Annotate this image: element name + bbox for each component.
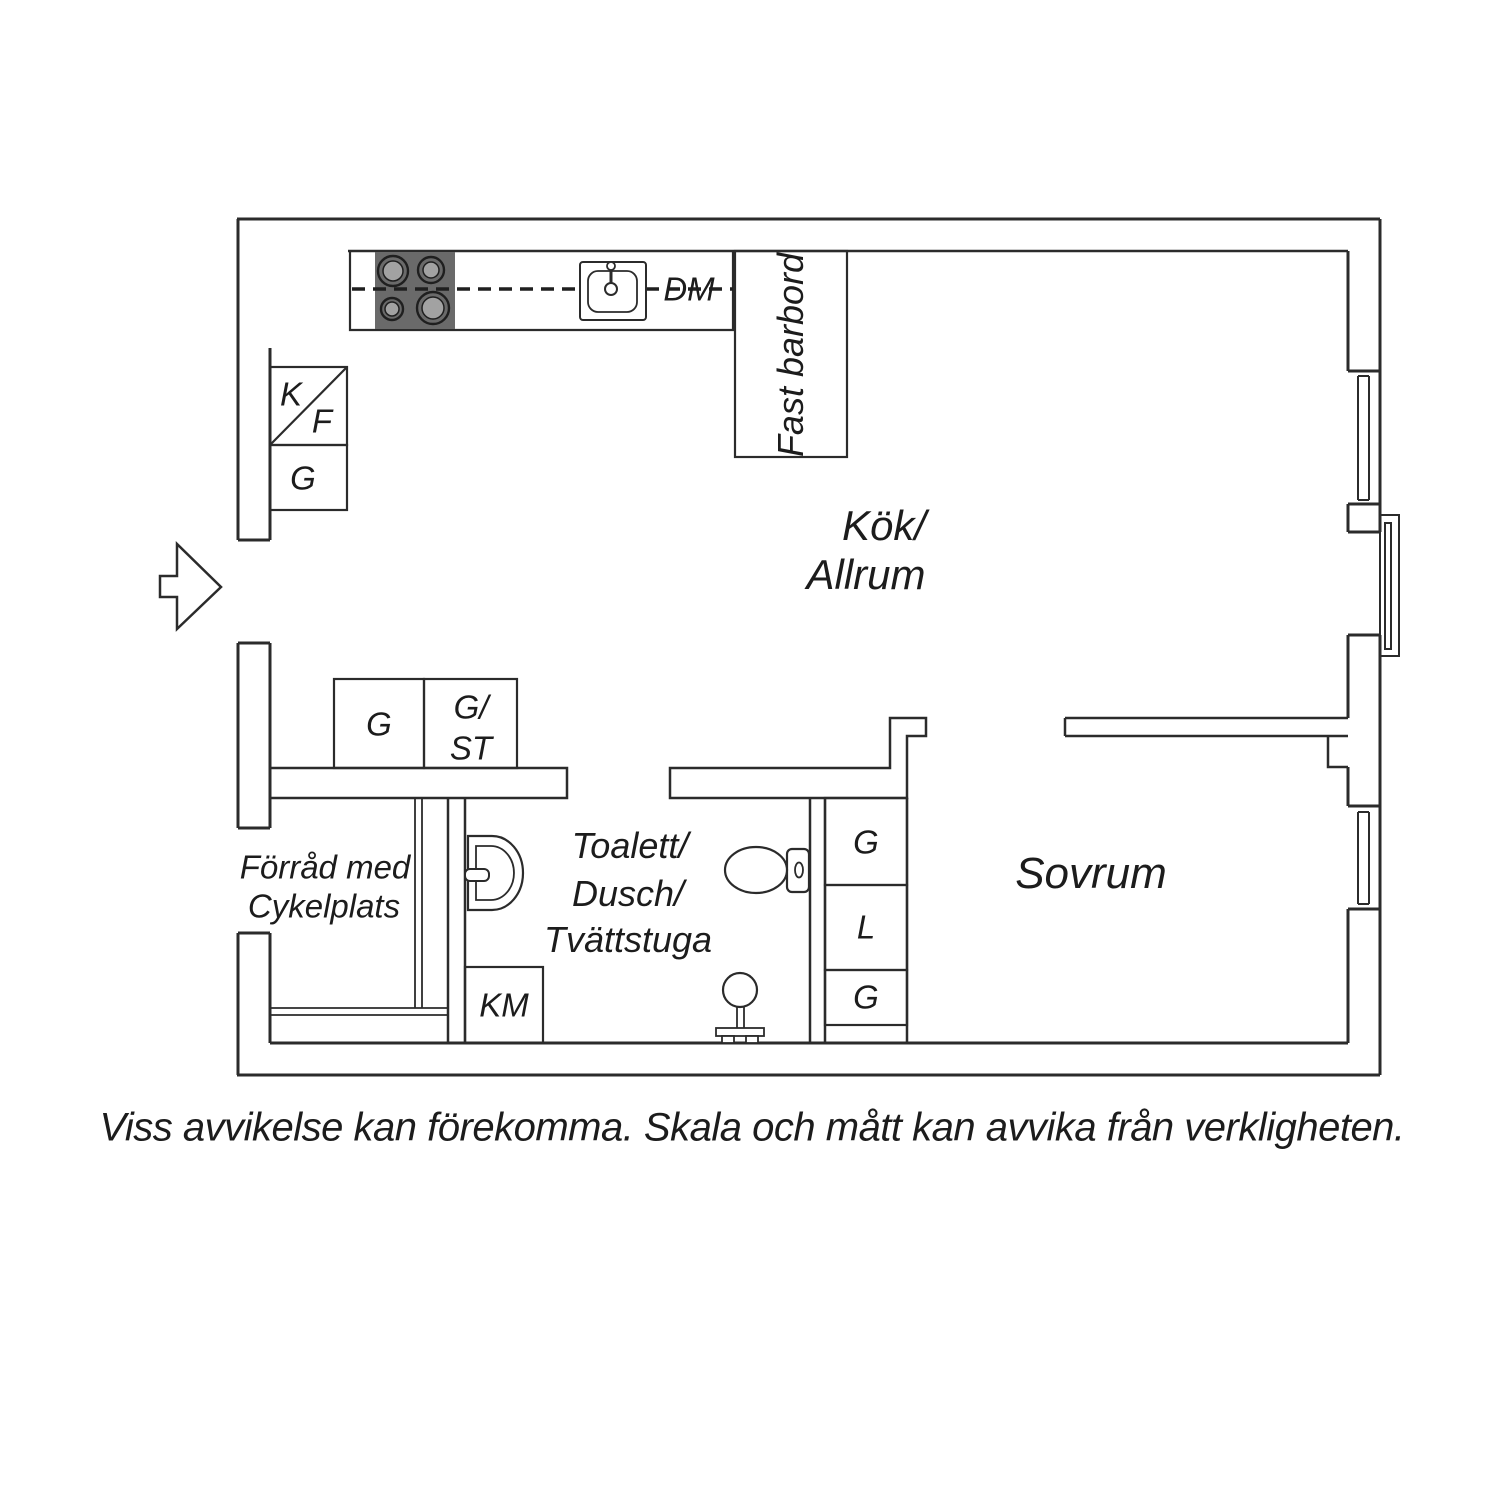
wardrobe-kitchen-label: G (290, 462, 316, 495)
floor-plan-page: Kök/ Allrum Sovrum Toalett/ Dusch/ Tvätt… (0, 0, 1500, 1500)
washing-machine-label: KM (479, 989, 529, 1022)
linen-closet-label: L (857, 911, 875, 944)
wardrobe-bedroom-top-label: G (853, 826, 879, 859)
balcony-door-frame (1380, 515, 1399, 656)
wardrobe-hall-label: G (366, 708, 392, 741)
wall-left-upper (238, 219, 270, 540)
disclaimer-caption: Viss avvikelse kan förekomma. Skala och … (99, 1106, 1404, 1151)
window-upper-right (1358, 376, 1369, 500)
wall-bathroom-east (810, 798, 825, 1043)
wall-bottom (237, 1043, 1380, 1075)
wall-left-middle (238, 643, 270, 828)
toilet (725, 847, 809, 893)
window-bedroom (1358, 812, 1369, 904)
wall-left-lower (238, 933, 270, 1075)
wall-bathroom-west (448, 798, 465, 1043)
room-label-bathroom-line2: Dusch/ (572, 876, 684, 912)
room-label-storage-line2: Cykelplats (248, 890, 400, 923)
room-label-bathroom-line1: Toalett/ (572, 828, 689, 864)
wall-bedroom-north (1065, 718, 1348, 767)
freezer-label: F (312, 405, 332, 438)
room-label-kitchen-line1: Kök/ (842, 505, 926, 547)
wall-right-inner (1348, 251, 1380, 1043)
entry-arrow-icon (160, 544, 221, 629)
wardrobe-cleaning-label-line1: G/ (454, 691, 489, 724)
bar-table-label: Fast barbord (773, 253, 809, 457)
wall-hall-west (270, 768, 567, 798)
dishwasher-label: DM (663, 273, 714, 306)
room-label-storage-line1: Förråd med (240, 851, 411, 884)
wall-hall-east (670, 718, 926, 798)
wardrobe-bedroom-bottom-label: G (853, 981, 879, 1014)
wardrobe-cleaning-label-line2: ST (450, 732, 492, 765)
room-label-kitchen-line2: Allrum (806, 554, 925, 596)
room-label-bedroom: Sovrum (1015, 852, 1167, 896)
floor-plan-drawing (0, 0, 1500, 1500)
room-label-bathroom-line3: Tvättstuga (544, 922, 712, 958)
washbasin (465, 836, 523, 910)
fridge-label: K (280, 378, 302, 411)
floor-drain-stand (716, 973, 764, 1043)
kitchen-sink (580, 262, 646, 320)
